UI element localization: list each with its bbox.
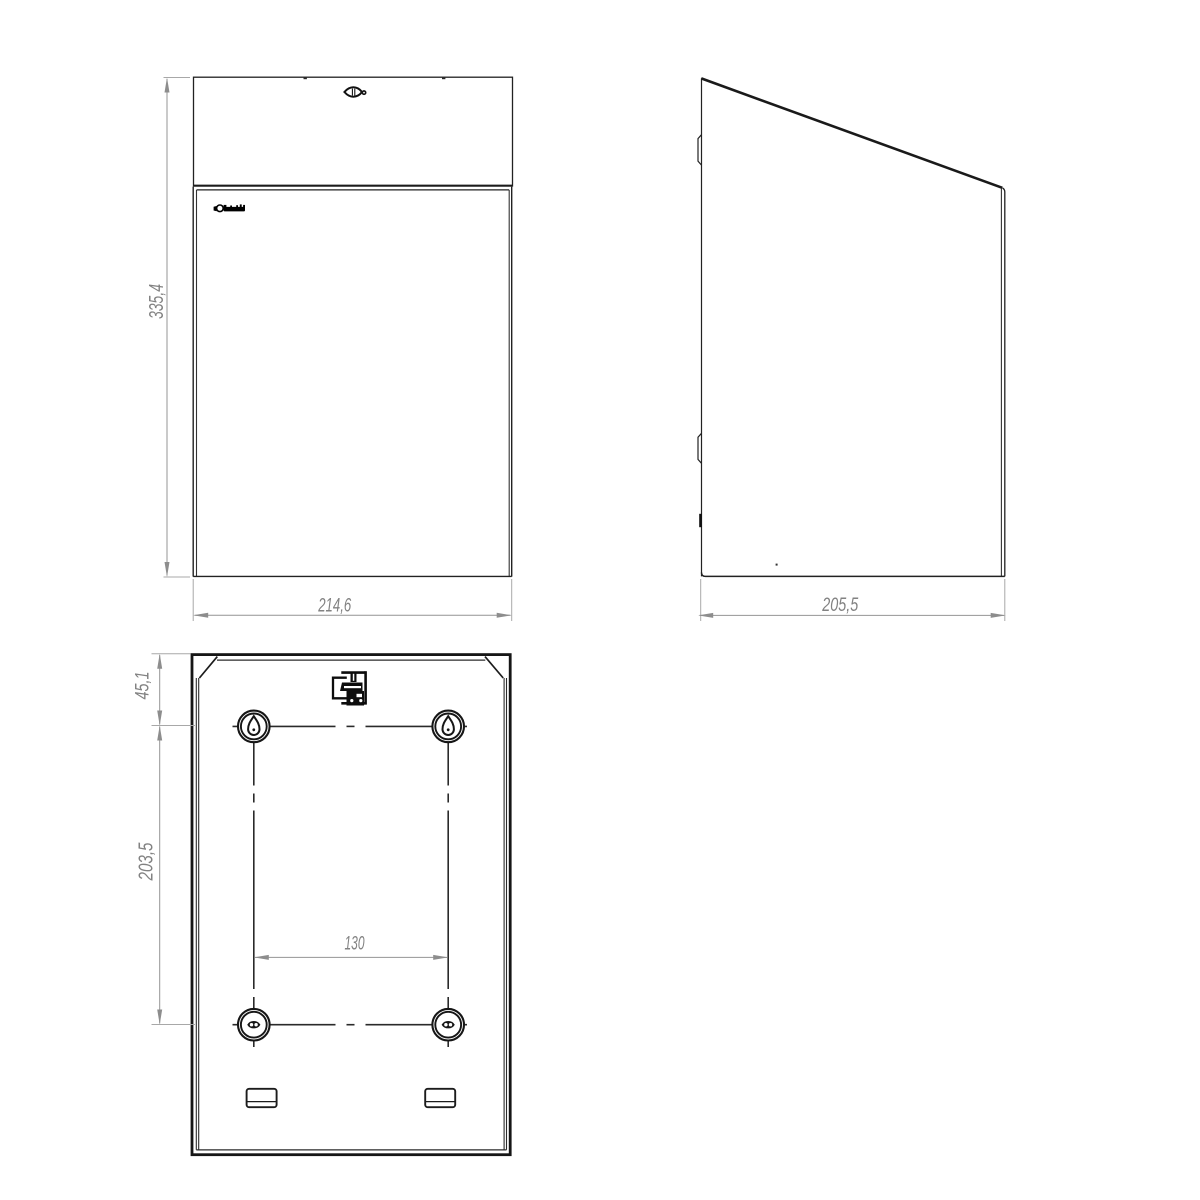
svg-text:45,1: 45,1 [133,672,154,700]
svg-text:203,5: 203,5 [136,842,158,881]
svg-text:214,6: 214,6 [318,595,352,616]
svg-text:335,4: 335,4 [146,284,168,319]
svg-text:130: 130 [345,934,365,955]
svg-text:205,5: 205,5 [822,594,859,616]
